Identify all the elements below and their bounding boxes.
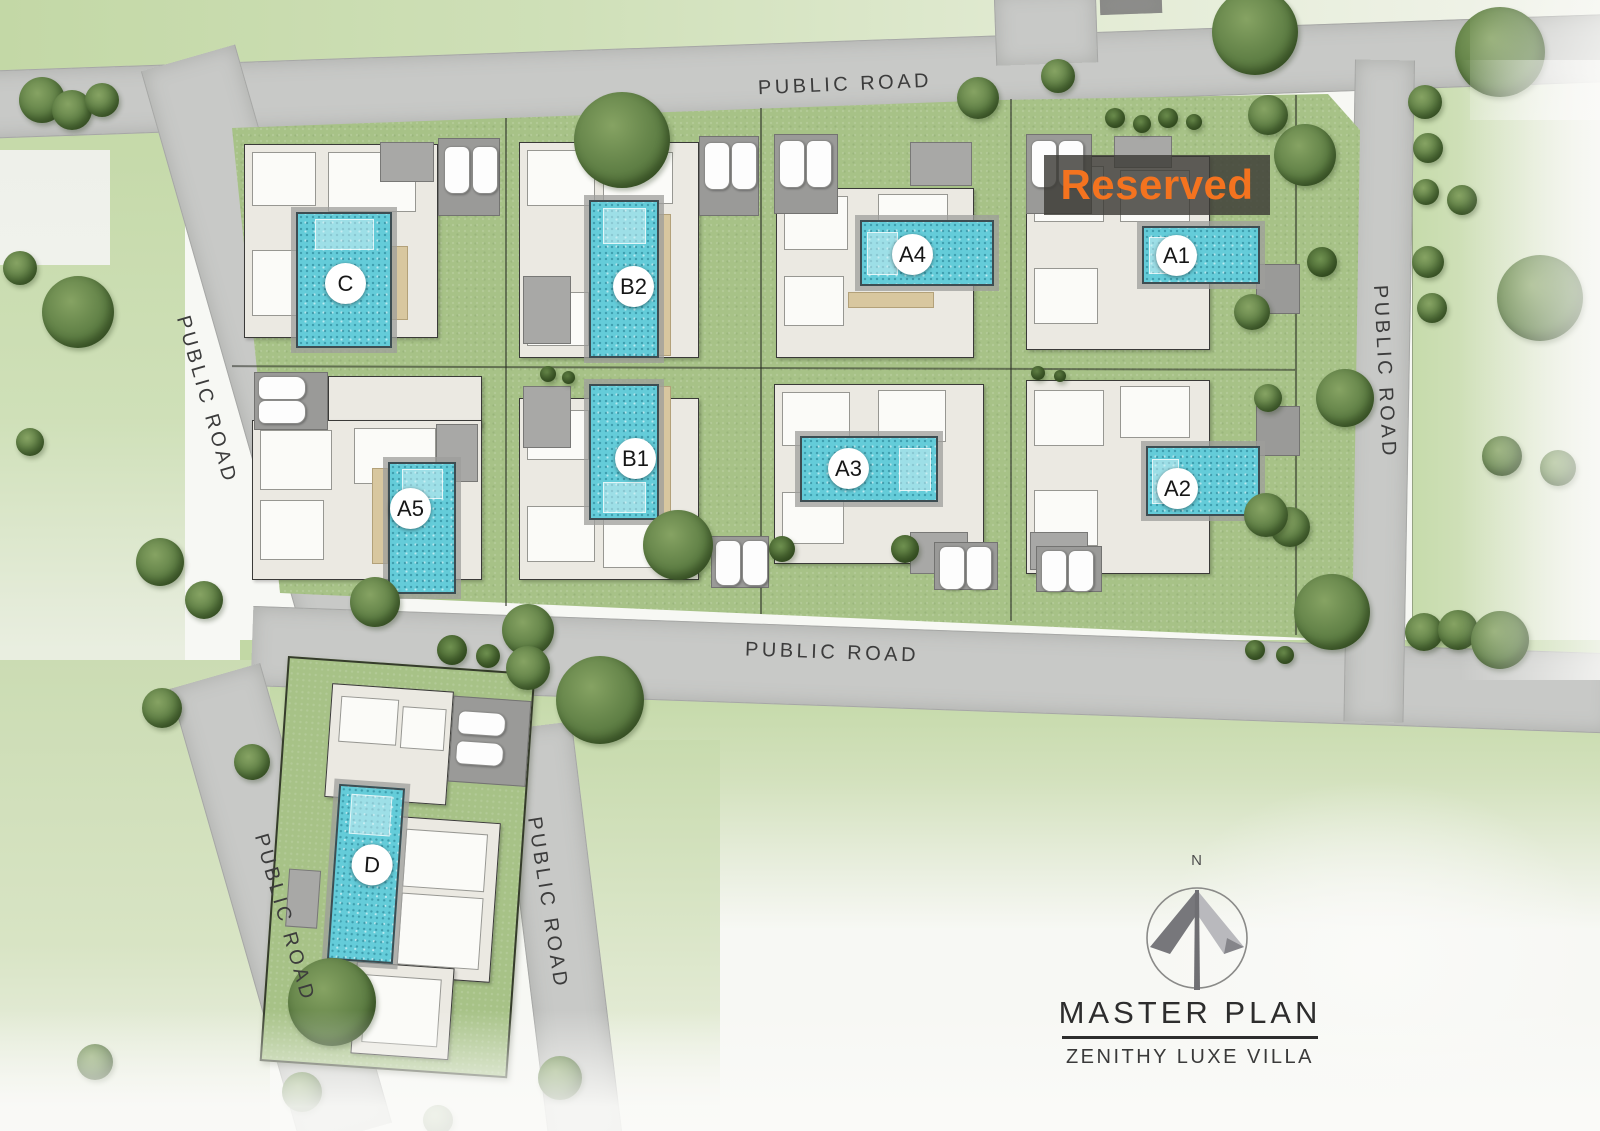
car-icon (1041, 550, 1067, 592)
villa-a5-label: A5 (390, 488, 431, 529)
villa-c-label: C (325, 263, 366, 304)
tree-icon (77, 1044, 113, 1080)
car-icon (455, 740, 505, 767)
tree-icon (85, 83, 119, 117)
villa-a4-room (784, 276, 844, 326)
villa-a4-plot: A4 (760, 128, 1010, 372)
villa-label-text: A1 (1163, 243, 1190, 269)
villa-label-text: A5 (397, 496, 424, 522)
tree-icon (1482, 436, 1522, 476)
villa-b2-deck (657, 214, 671, 356)
palm-tree-icon (476, 644, 500, 668)
tree-icon (1417, 293, 1447, 323)
palm-tree-icon (1186, 114, 1202, 130)
lawn-left-pale-patch (0, 150, 110, 265)
tree-icon (1316, 369, 1374, 427)
palm-tree-icon (1276, 646, 1294, 664)
tree-icon (1234, 294, 1270, 330)
villa-a5-room (260, 500, 324, 560)
villa-a5-pool (388, 462, 456, 594)
villa-a2-plot: A2 (1010, 372, 1295, 592)
villa-a5-deck (372, 468, 388, 564)
car-icon (966, 546, 992, 590)
pool-step (603, 482, 646, 513)
pool-step (349, 794, 392, 837)
car-icon (806, 140, 832, 188)
villa-a2-pad (1256, 406, 1300, 456)
car-icon (258, 376, 306, 400)
villa-a3-plot: A3 (760, 372, 1010, 592)
villa-d-room (400, 706, 447, 751)
villa-a2-room (1120, 386, 1190, 438)
pool-step (899, 448, 930, 491)
car-icon (939, 546, 965, 590)
villa-c-roof (380, 142, 434, 182)
palm-tree-icon (1133, 115, 1151, 133)
palm-tree-icon (1158, 108, 1178, 128)
villa-b2-roof (523, 276, 571, 344)
tree-icon (506, 646, 550, 690)
tree-icon (142, 688, 182, 728)
villa-b1-roof (523, 386, 571, 448)
villa-a1-label: A1 (1156, 235, 1197, 276)
title-divider (1062, 1036, 1318, 1039)
tree-icon (42, 276, 114, 348)
tree-icon (1413, 179, 1439, 205)
villa-a2-room (1034, 390, 1104, 446)
villa-label-text: A3 (835, 456, 862, 482)
project-name: ZENITHY LUXE VILLA (1015, 1046, 1365, 1069)
car-icon (779, 140, 805, 188)
road-top-stub (994, 0, 1098, 66)
tree-icon (1274, 124, 1336, 186)
tree-icon (1041, 59, 1075, 93)
tree-icon (1248, 95, 1288, 135)
palm-tree-icon (540, 366, 556, 382)
palm-tree-icon (1245, 640, 1265, 660)
villa-b1-room (527, 506, 595, 562)
palm-tree-icon (1031, 366, 1045, 380)
car-icon (1068, 550, 1094, 592)
villa-a2-label: A2 (1157, 468, 1198, 509)
villa-c-plot: C (232, 128, 505, 360)
villa-d-room (402, 829, 488, 893)
tree-icon (1540, 450, 1576, 486)
tree-icon (1413, 133, 1443, 163)
car-icon (715, 540, 741, 586)
tree-icon (1294, 574, 1370, 650)
road-stub-cap (1100, 0, 1163, 15)
villa-a3-pool (800, 436, 938, 502)
palm-tree-icon (1307, 247, 1337, 277)
tree-icon (136, 538, 184, 586)
villa-a4-label: A4 (892, 234, 933, 275)
tree-icon (1447, 185, 1477, 215)
villa-a4-roof (910, 142, 972, 186)
lawn-right (1412, 30, 1600, 670)
palm-tree-icon (1054, 370, 1066, 382)
tree-icon (1408, 85, 1442, 119)
tree-icon (423, 1105, 453, 1131)
car-icon (704, 142, 730, 190)
villa-a3-room (878, 390, 946, 442)
tree-icon (1254, 384, 1282, 412)
palm-tree-icon (437, 635, 467, 665)
villa-label-text: A4 (899, 242, 926, 268)
villa-d-room (338, 696, 399, 746)
compass-icon (1130, 870, 1264, 1000)
tree-icon (350, 577, 400, 627)
palm-tree-icon (891, 535, 919, 563)
car-icon (444, 146, 470, 194)
palm-tree-icon (769, 536, 795, 562)
villa-a5-plot: A5 (232, 360, 505, 592)
villa-label-text: D (363, 851, 381, 878)
villa-a4-deck (848, 292, 934, 308)
villa-b1-deck (657, 386, 671, 518)
tree-icon (1497, 255, 1583, 341)
tree-icon (1471, 611, 1529, 669)
car-icon (731, 142, 757, 190)
tree-icon (574, 92, 670, 188)
tree-icon (282, 1072, 322, 1112)
plan-title: MASTER PLAN (1015, 995, 1365, 1031)
villa-a5-room (260, 430, 332, 490)
master-plan-scene: PUBLIC ROADPUBLIC ROADPUBLIC ROADPUBLIC … (0, 0, 1600, 1131)
legend-title-block: MASTER PLAN ZENITHY LUXE VILLA (1015, 995, 1365, 1069)
tree-icon (185, 581, 223, 619)
compass-rose: N (1122, 852, 1272, 1005)
tree-icon (3, 251, 37, 285)
villa-c-deck (390, 246, 408, 320)
villa-c-room (252, 152, 316, 206)
tree-icon (556, 656, 644, 744)
villa-a3-label: A3 (828, 448, 869, 489)
pool-step (315, 219, 374, 250)
palm-tree-icon (562, 371, 575, 384)
villa-b1-plot: B1 (505, 370, 760, 592)
villa-b2-label: B2 (613, 266, 654, 307)
reserved-banner: Reserved (1044, 155, 1270, 215)
tree-icon (234, 744, 270, 780)
villa-label-text: B2 (620, 274, 647, 300)
tree-icon (643, 510, 713, 580)
reserved-label: Reserved (1060, 161, 1253, 209)
villa-d-room (397, 893, 484, 971)
villa-a1-room (1034, 268, 1098, 324)
tree-icon (1412, 246, 1444, 278)
tree-icon (1455, 7, 1545, 97)
villa-label-text: B1 (622, 446, 649, 472)
tree-icon (1244, 493, 1288, 537)
villa-b1-label: B1 (615, 438, 656, 479)
tree-icon (16, 428, 44, 456)
villa-label-text: C (338, 271, 354, 297)
palm-tree-icon (1105, 108, 1125, 128)
pool-step (603, 208, 646, 244)
car-icon (472, 146, 498, 194)
car-icon (457, 710, 507, 737)
tree-icon (957, 77, 999, 119)
compass-north-label: N (1122, 852, 1272, 869)
tree-icon (538, 1056, 582, 1100)
villa-label-text: A2 (1164, 476, 1191, 502)
car-icon (258, 400, 306, 424)
